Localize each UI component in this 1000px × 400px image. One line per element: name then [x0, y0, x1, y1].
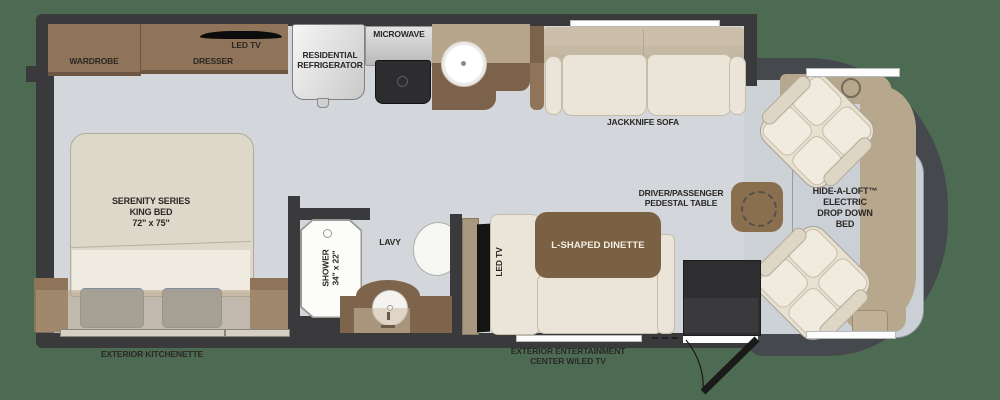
label-bedroom-tv: LED TV [231, 40, 260, 50]
label-dinette: L-SHAPED DINETTE [551, 240, 644, 252]
bedroom-slide-overlay [36, 290, 288, 333]
range-burner-icon [397, 76, 408, 87]
label-refrigerator: RESIDENTIAL REFRIGERATOR [297, 50, 362, 71]
floor-plan: WARDROBE DRESSER LED TV RESIDENTIAL REFR… [0, 0, 1000, 400]
label-lavy: LAVY [379, 237, 400, 247]
pedestal-table-base-icon [741, 191, 777, 227]
sofa-cushion-right [647, 54, 732, 116]
label-exterior-kitchenette: EXTERIOR KITCHENETTE [101, 349, 203, 359]
label-dresser: DRESSER [193, 56, 233, 66]
label-microwave: MICROWAVE [373, 29, 424, 39]
sofa-armrest-right [729, 56, 746, 115]
label-dinette-tv: LED TV [494, 247, 504, 276]
label-pedestal-table: DRIVER/PASSENGER PEDESTAL TABLE [639, 188, 724, 209]
bed-sheet [72, 250, 250, 292]
label-shower: SHOWER 34" x 22" [321, 249, 342, 286]
entry-door-icon [648, 330, 783, 400]
exterior-kitchenette-hatch [60, 329, 290, 337]
label-exterior-entertainment: EXTERIOR ENTERTAINMENT CENTER W/LED TV [511, 346, 626, 367]
cab-window-bottom [806, 331, 896, 339]
label-hide-a-loft: HIDE-A-LOFT™ ELECTRIC DROP DOWN BED [813, 186, 878, 230]
dinette-bench-bottom [537, 274, 663, 334]
cab-window-top [806, 68, 900, 77]
wardrobe [48, 24, 141, 76]
hatch-divider [224, 329, 226, 336]
dinette-tv [477, 224, 490, 333]
faucet-stem-icon [387, 312, 390, 320]
kitchen-sink-drain-icon [461, 61, 466, 66]
sofa-cushion-left [562, 54, 647, 116]
sofa-armrest-left [545, 56, 562, 115]
dinette-window [516, 335, 642, 342]
bath-wall-shower-top [288, 208, 370, 220]
left-wall-notch [26, 66, 38, 82]
counter-end-cabinet-lower [530, 63, 544, 110]
counter-end-cabinet [530, 26, 544, 63]
label-jackknife-sofa: JACKKNIFE SOFA [607, 117, 679, 127]
entertainment-center-lower [684, 298, 758, 333]
refrigerator-foot [317, 98, 329, 108]
label-wardrobe: WARDROBE [69, 56, 118, 66]
dresser-tv-icon [200, 31, 282, 39]
shower-head-icon [323, 229, 332, 238]
label-king-bed: SERENITY SERIES KING BED 72" x 75" [112, 196, 190, 229]
sofa-window [570, 20, 720, 27]
